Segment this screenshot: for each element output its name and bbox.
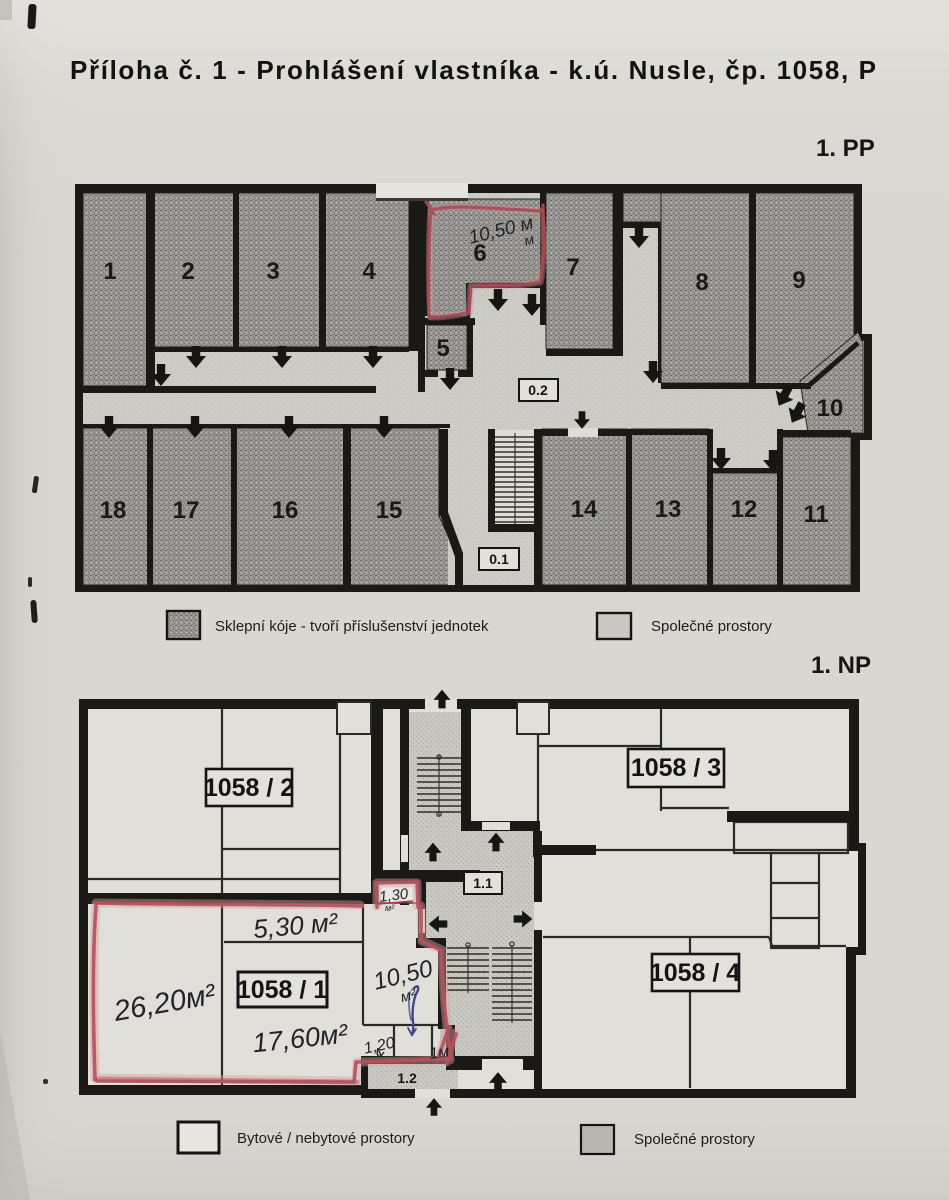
svg-text:3: 3: [266, 258, 279, 285]
svg-text:м²: м²: [385, 903, 395, 913]
svg-text:Sklepní kóje - tvoří příslušen: Sklepní kóje - tvoří příslušenství jedno…: [215, 618, 489, 635]
svg-text:5: 5: [436, 335, 449, 362]
svg-text:13: 13: [655, 496, 682, 523]
svg-text:Společné prostory: Společné prostory: [651, 618, 772, 635]
svg-text:1.2: 1.2: [397, 1070, 417, 1086]
svg-text:1058 / 3: 1058 / 3: [631, 754, 721, 782]
svg-text:4: 4: [362, 258, 376, 285]
svg-text:1.1: 1.1: [473, 875, 493, 891]
svg-text:0.1: 0.1: [489, 551, 509, 567]
svg-text:15: 15: [376, 497, 403, 524]
svg-text:Bytové / nebytové prostory: Bytové / nebytové prostory: [237, 1130, 415, 1147]
svg-text:14: 14: [571, 496, 598, 523]
svg-text:2: 2: [181, 258, 194, 285]
svg-text:18: 18: [100, 497, 127, 524]
svg-text:11: 11: [803, 501, 828, 528]
svg-text:7: 7: [566, 254, 579, 281]
svg-text:Společné prostory: Společné prostory: [634, 1131, 755, 1148]
svg-text:Příloha č. 1 - Prohlášení vlas: Příloha č. 1 - Prohlášení vlastníka - k.…: [70, 55, 876, 85]
svg-text:10: 10: [817, 395, 844, 422]
svg-text:1: 1: [103, 258, 116, 285]
svg-text:8: 8: [695, 269, 708, 296]
svg-text:16: 16: [272, 497, 299, 524]
svg-text:1. NP: 1. NP: [811, 652, 871, 679]
svg-text:0.2: 0.2: [528, 382, 548, 398]
svg-text:1058 / 4: 1058 / 4: [650, 959, 740, 987]
svg-text:17: 17: [173, 497, 200, 524]
svg-text:9: 9: [792, 267, 805, 294]
svg-text:1м: 1м: [428, 1043, 450, 1063]
svg-text:12: 12: [731, 496, 758, 523]
svg-text:1058 / 1: 1058 / 1: [237, 976, 327, 1004]
svg-text:1058 / 2: 1058 / 2: [204, 774, 294, 802]
svg-text:1. PP: 1. PP: [816, 135, 875, 162]
